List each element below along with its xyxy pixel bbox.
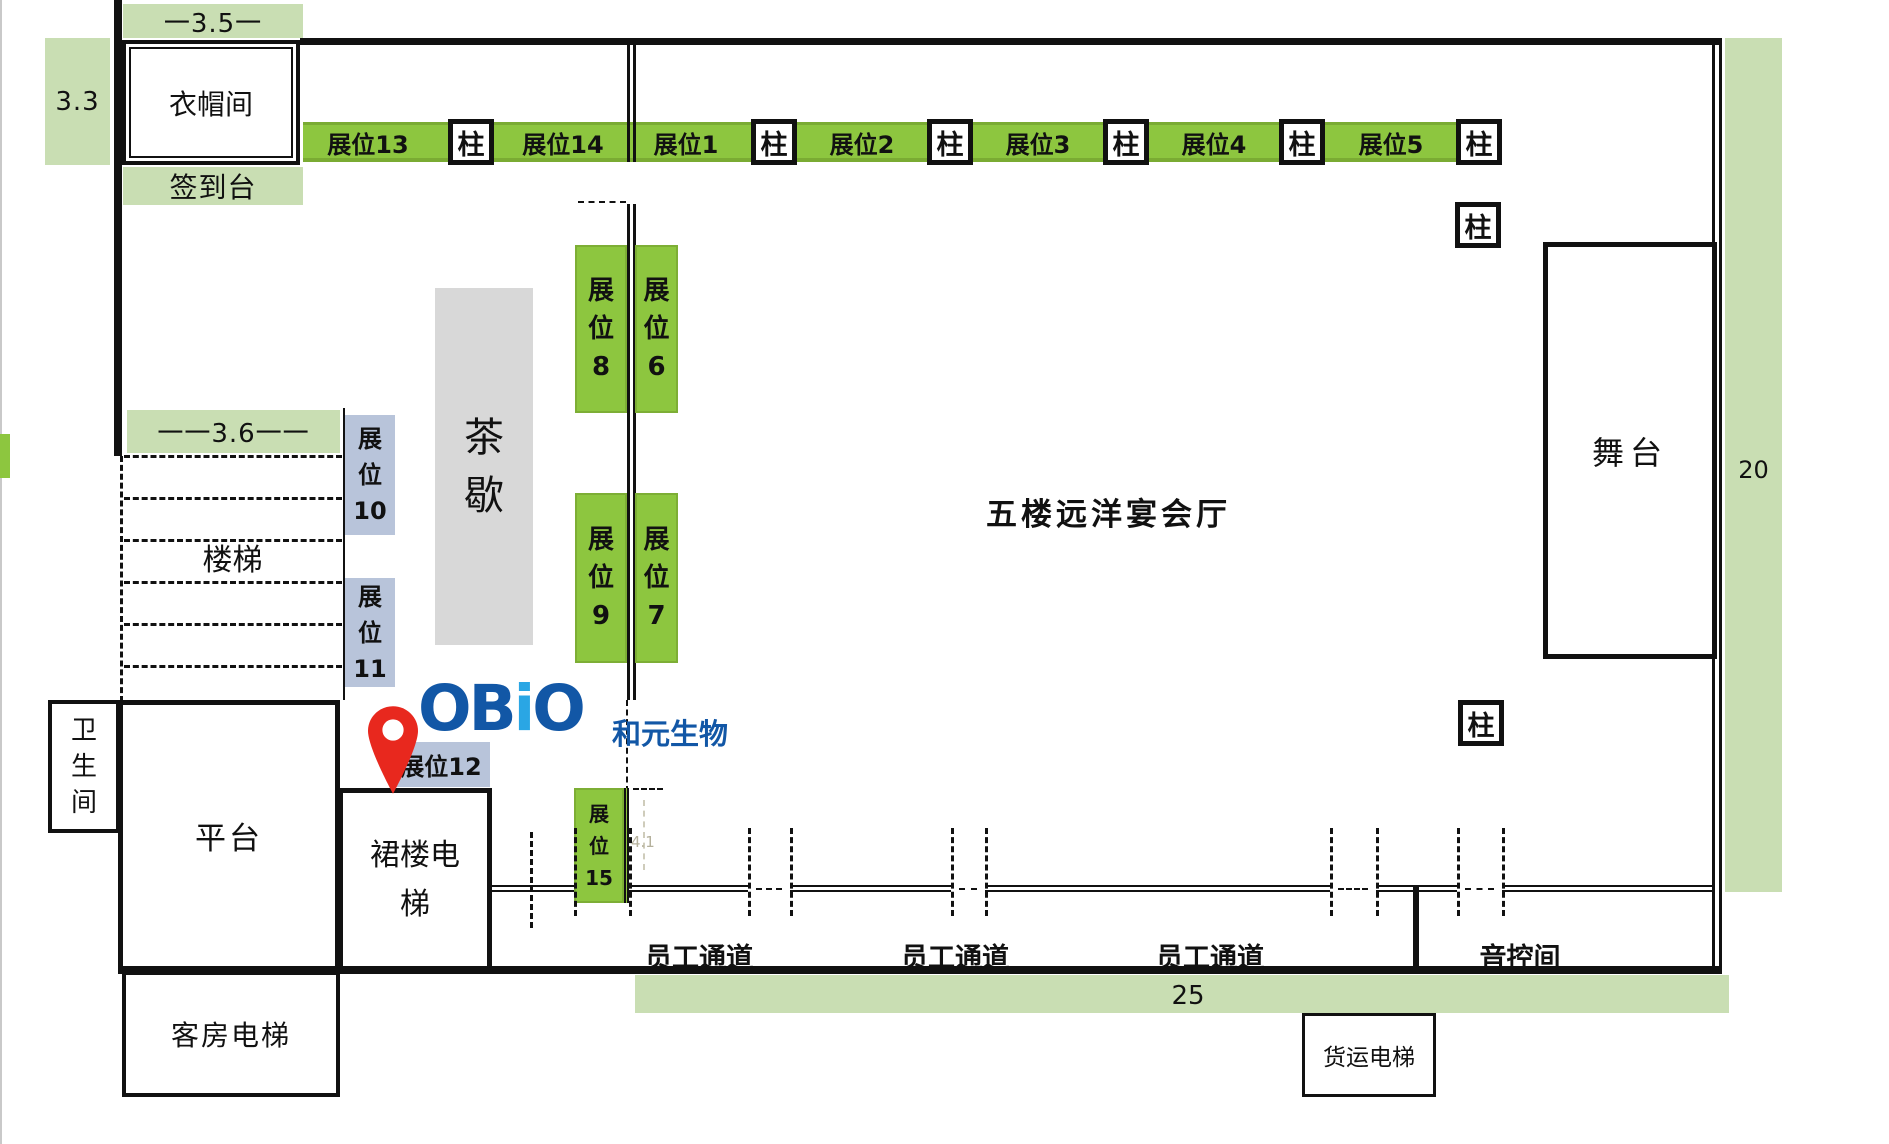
door-dashed-line: [1330, 828, 1333, 916]
room-freight-elevator: 货运电梯: [1302, 1013, 1436, 1097]
tea-char-1: 茶: [435, 410, 533, 458]
stair-line: [124, 539, 342, 542]
booth-10: 展位10: [345, 415, 395, 535]
booth15-top-dash: [633, 788, 663, 790]
dimension-top: 一3.5一: [123, 4, 303, 38]
freight-elevator-label: 货运电梯: [1323, 1038, 1415, 1072]
stair-line: [124, 665, 342, 668]
door-gap-dash: [1338, 888, 1368, 890]
door-dashed-line: [530, 832, 533, 928]
corridor-wall-segment: [790, 885, 951, 892]
podium-elevator-line-1: 裙楼电: [370, 836, 460, 875]
booth-9-char: 9: [592, 603, 610, 629]
booth-7-char: 展: [643, 527, 669, 553]
booth-6-char: 位: [643, 316, 669, 342]
booth-15-char: 展: [589, 804, 609, 824]
pillar-box: 柱: [751, 119, 797, 165]
door-dashed-line: [629, 828, 632, 916]
location-pin-icon: [368, 706, 418, 794]
dimension-left: 3.3: [45, 38, 110, 165]
corridor-wall-segment: [985, 885, 1330, 892]
stair-line: [124, 455, 342, 458]
booth-7-char: 位: [643, 565, 669, 591]
door-gap-dash: [1465, 888, 1494, 890]
door-dashed-line: [1502, 828, 1505, 916]
cloakroom-label: 衣帽间: [169, 83, 253, 123]
booth-6: 展位6: [635, 245, 678, 413]
room-stage: 舞台: [1543, 242, 1717, 659]
podium-elevator-line-2: 梯: [400, 885, 430, 924]
toilet-char-1: 卫: [71, 718, 97, 744]
pillar-box: 柱: [1456, 119, 1502, 165]
door-dashed-line: [574, 828, 577, 916]
obio-letter-b: B: [469, 672, 514, 745]
booth-6-char: 6: [647, 354, 665, 380]
obio-letter-o2: O: [532, 672, 583, 745]
staff-passage-label: 员工通道: [645, 936, 753, 975]
pillar-box: 柱: [1455, 202, 1501, 248]
obio-letter-i: i: [514, 672, 533, 745]
booth-strip-label: 展位14: [522, 122, 603, 162]
booth-10-char: 10: [353, 499, 386, 523]
mid-wall-upper-b: [633, 38, 636, 162]
booth-9: 展位9: [575, 493, 627, 663]
mid-wall-door-dash: [578, 201, 626, 203]
obio-letter-o1: O: [418, 672, 469, 745]
booth-strip-label: 展位4: [1182, 122, 1247, 162]
toilet-char-2: 生: [71, 754, 97, 780]
door-gap-dash: [756, 888, 782, 890]
booth-11: 展位11: [345, 578, 395, 687]
platform-label: 平台: [195, 813, 263, 858]
booth-7-char: 7: [647, 603, 665, 629]
room-cloakroom: 衣帽间: [122, 40, 300, 165]
booth-strip-label: 展位5: [1359, 122, 1424, 162]
stage-label: 舞台: [1592, 428, 1668, 474]
booth-8-char: 展: [588, 278, 614, 304]
wall-top: [300, 38, 1722, 45]
booth-11-char: 展: [358, 585, 382, 609]
booth-15-char: 位: [589, 836, 609, 856]
dimension-right-value: 20: [1725, 450, 1782, 490]
booth-11-char: 位: [358, 621, 382, 645]
sound-room-divider: [1413, 885, 1419, 970]
wall-left: [114, 0, 122, 456]
booth-15: 展位15: [574, 788, 629, 903]
booth-6-char: 展: [643, 278, 669, 304]
corridor-wall-segment: [1419, 885, 1457, 892]
guest-elevator-label: 客房电梯: [171, 1014, 291, 1054]
mid-wall-upper-a: [627, 38, 630, 162]
corridor-wall-segment: [1502, 885, 1712, 892]
door-dashed-line: [1376, 828, 1379, 916]
door-gap-dash: [959, 888, 977, 890]
booth-8-char: 8: [592, 354, 610, 380]
stair-left-dashed-wall: [120, 456, 123, 702]
stair-line: [124, 581, 342, 584]
door-dashed-line: [985, 828, 988, 916]
corridor-wall-segment: [1376, 885, 1413, 892]
booth-strip-label: 展位1: [654, 122, 719, 162]
room-toilet: 卫 生 间: [48, 700, 120, 833]
tea-char-2: 歇: [435, 468, 533, 516]
room-guest-elevator: 客房电梯: [122, 971, 340, 1097]
obio-cn-name: 和元生物: [612, 711, 728, 753]
page-edge-line: [0, 0, 2, 1144]
room-platform: 平台: [118, 700, 340, 971]
obio-logo-text: OBiO: [418, 677, 583, 740]
stair-line: [124, 623, 342, 626]
booth-10-char: 展: [358, 427, 382, 451]
booth-15-char: 15: [585, 868, 613, 888]
stair-line: [124, 497, 342, 500]
staff-passage-label: 员工通道: [901, 936, 1009, 975]
pillar-box: 柱: [1279, 119, 1325, 165]
booth-7: 展位7: [635, 493, 678, 663]
dimension-booth15: 4.1: [631, 833, 655, 851]
booth-8-char: 位: [588, 316, 614, 342]
left-green-tab: [0, 434, 10, 478]
room-sound-control: 音控间: [1480, 936, 1561, 975]
toilet-char-3: 间: [71, 790, 97, 816]
door-dashed-line: [1457, 828, 1460, 916]
hall-title: 五楼远洋宴会厅: [986, 489, 1231, 534]
room-podium-elevator: 裙楼电 梯: [338, 788, 492, 971]
booth-9-char: 展: [588, 527, 614, 553]
door-dashed-line: [951, 828, 954, 916]
room-stairs: 楼梯: [175, 538, 290, 576]
pillar-box: 柱: [1103, 119, 1149, 165]
booth-strip-label: 展位3: [1006, 122, 1071, 162]
pillar-box: 柱: [1458, 700, 1504, 746]
dimension-stairs: 一一3.6一一: [127, 410, 340, 453]
booth-11-char: 11: [353, 657, 386, 681]
staff-passage-label: 员工通道: [1156, 936, 1264, 975]
booth-10-char: 位: [358, 463, 382, 487]
booth-8: 展位8: [575, 245, 627, 413]
room-signin-desk: 签到台: [123, 167, 303, 205]
booth-strip-label: 展位2: [830, 122, 895, 162]
corridor-wall-segment: [629, 885, 748, 892]
corridor-wall-segment: [492, 885, 574, 892]
floor-plan: 20 一3.5一 3.3 衣帽间 签到台 一一3.6一一 楼梯 茶 歇 五楼远洋…: [0, 0, 1889, 1144]
pillar-box: 柱: [927, 119, 973, 165]
door-dashed-line: [790, 828, 793, 916]
door-dashed-line: [748, 828, 751, 916]
mid-wall-lower-a: [627, 204, 630, 700]
pillar-box: 柱: [448, 119, 494, 165]
wall-right-inner: [1719, 38, 1722, 972]
dimension-bottom-value: 25: [1171, 981, 1204, 1011]
booth-strip-label: 展位13: [327, 122, 408, 162]
booth-9-char: 位: [588, 565, 614, 591]
